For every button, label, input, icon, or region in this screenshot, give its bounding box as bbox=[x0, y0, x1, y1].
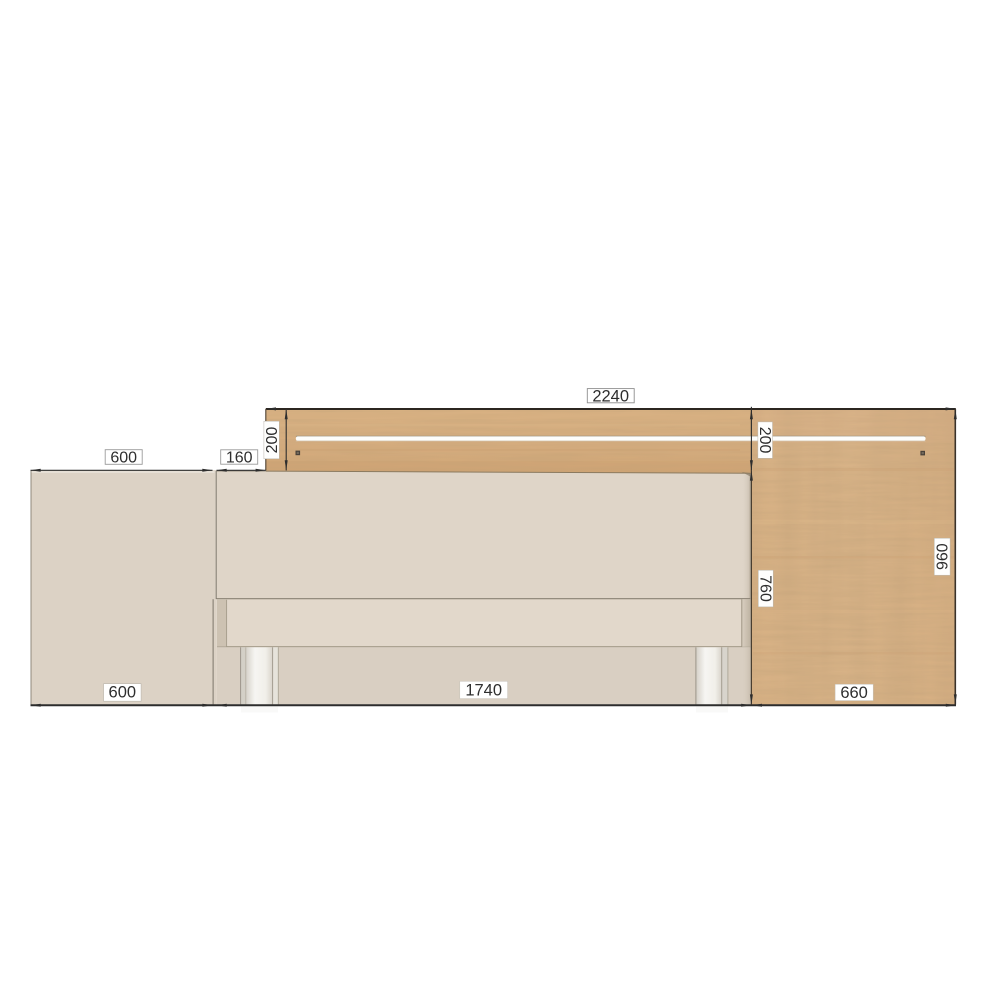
svg-text:660: 660 bbox=[840, 684, 868, 702]
svg-text:960: 960 bbox=[935, 543, 952, 570]
svg-text:200: 200 bbox=[756, 427, 773, 454]
svg-text:200: 200 bbox=[264, 427, 281, 454]
svg-text:600: 600 bbox=[109, 684, 137, 702]
svg-text:760: 760 bbox=[756, 575, 773, 602]
svg-text:2240: 2240 bbox=[592, 388, 629, 406]
svg-text:160: 160 bbox=[226, 449, 253, 466]
svg-text:600: 600 bbox=[110, 449, 137, 466]
svg-text:1740: 1740 bbox=[465, 681, 502, 699]
